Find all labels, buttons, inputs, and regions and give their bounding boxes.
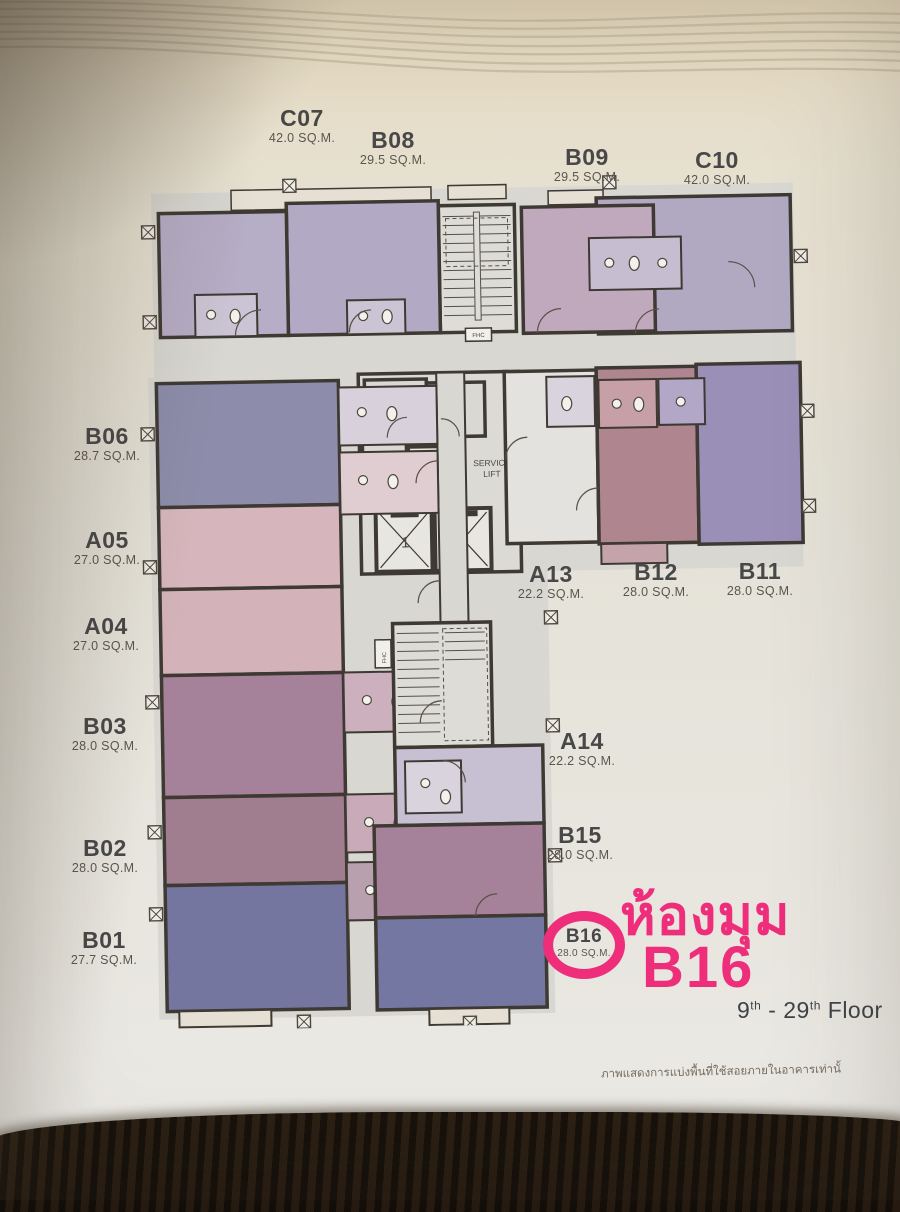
sink-icon (362, 696, 371, 705)
unit-b02-room (164, 794, 348, 885)
unit-label-b15: B15 28.0 SQ.M. (547, 823, 613, 862)
balcony (448, 185, 506, 200)
unit-label-b01: B01 27.7 SQ.M. (71, 928, 137, 967)
toilet-icon (562, 396, 572, 410)
unit-label-b09: B09 29.5 SQ.M. (554, 145, 620, 184)
highlight-ring (543, 911, 625, 979)
unit-label-a05: A05 27.0 SQ.M. (74, 528, 140, 567)
unit-label-a13: A13 22.2 SQ.M. (518, 562, 584, 601)
unit-b15-room (374, 823, 546, 918)
unit-label-b12: B12 28.0 SQ.M. (623, 560, 689, 599)
sink-icon (612, 399, 621, 408)
sink-icon (676, 397, 685, 406)
balcony (179, 1010, 271, 1028)
toilet-icon (440, 790, 450, 804)
toilet-icon (629, 256, 639, 270)
wooden-table (0, 1112, 900, 1212)
lift1-label: 1 (401, 534, 410, 551)
fhc-label: FHC (382, 652, 388, 663)
unit-label-b06: B06 28.7 SQ.M. (74, 424, 140, 463)
unit-label-c07: C07 42.0 SQ.M. (269, 106, 335, 145)
unit-label-b02: B02 28.0 SQ.M. (72, 836, 138, 875)
unit-label-c10: C10 42.0 SQ.M. (684, 148, 750, 187)
passenger-lifts (376, 508, 492, 572)
unit-a04-room (160, 586, 343, 675)
unit-label-b08: B08 29.5 SQ.M. (360, 128, 426, 167)
floor-range-note: 9th - 29th Floor (737, 997, 883, 1024)
sink-icon (207, 310, 216, 319)
sink-icon (605, 258, 614, 267)
sink-icon (364, 817, 373, 826)
unit-b01-room (165, 882, 349, 1011)
sink-icon (357, 408, 366, 417)
annotation-unit: B16 (642, 934, 754, 1001)
toilet-icon (388, 475, 398, 489)
fhc-label: FHC (472, 333, 485, 339)
toilet-icon (634, 397, 644, 411)
toilet-icon (382, 310, 392, 324)
unit-label-a04: A04 27.0 SQ.M. (73, 614, 139, 653)
unit-a05-room (158, 505, 341, 590)
unit-label-b03: B03 28.0 SQ.M. (72, 714, 138, 753)
unit-label-a14: A14 22.2 SQ.M. (549, 729, 615, 768)
unit-b11-room (696, 362, 803, 544)
sink-icon (658, 258, 667, 267)
unit-b06-room (156, 381, 340, 508)
sink-icon (421, 778, 430, 787)
decorative-wavy-lines (0, 0, 900, 95)
sink-icon (358, 476, 367, 485)
photo-of-floorplan-page: { "photo": { "caption": "ภาพแสดงการแบ่งพ… (0, 0, 900, 1200)
unit-b16-room (376, 915, 548, 1010)
unit-b03-room (161, 672, 345, 797)
bathroom (195, 294, 258, 337)
toilet-icon (230, 309, 240, 323)
bathroom (405, 760, 462, 813)
toilet-icon (387, 407, 397, 421)
unit-label-b11: B11 28.0 SQ.M. (727, 559, 793, 598)
service-lift-label-2: LIFT (483, 469, 501, 479)
bathroom (598, 379, 657, 428)
